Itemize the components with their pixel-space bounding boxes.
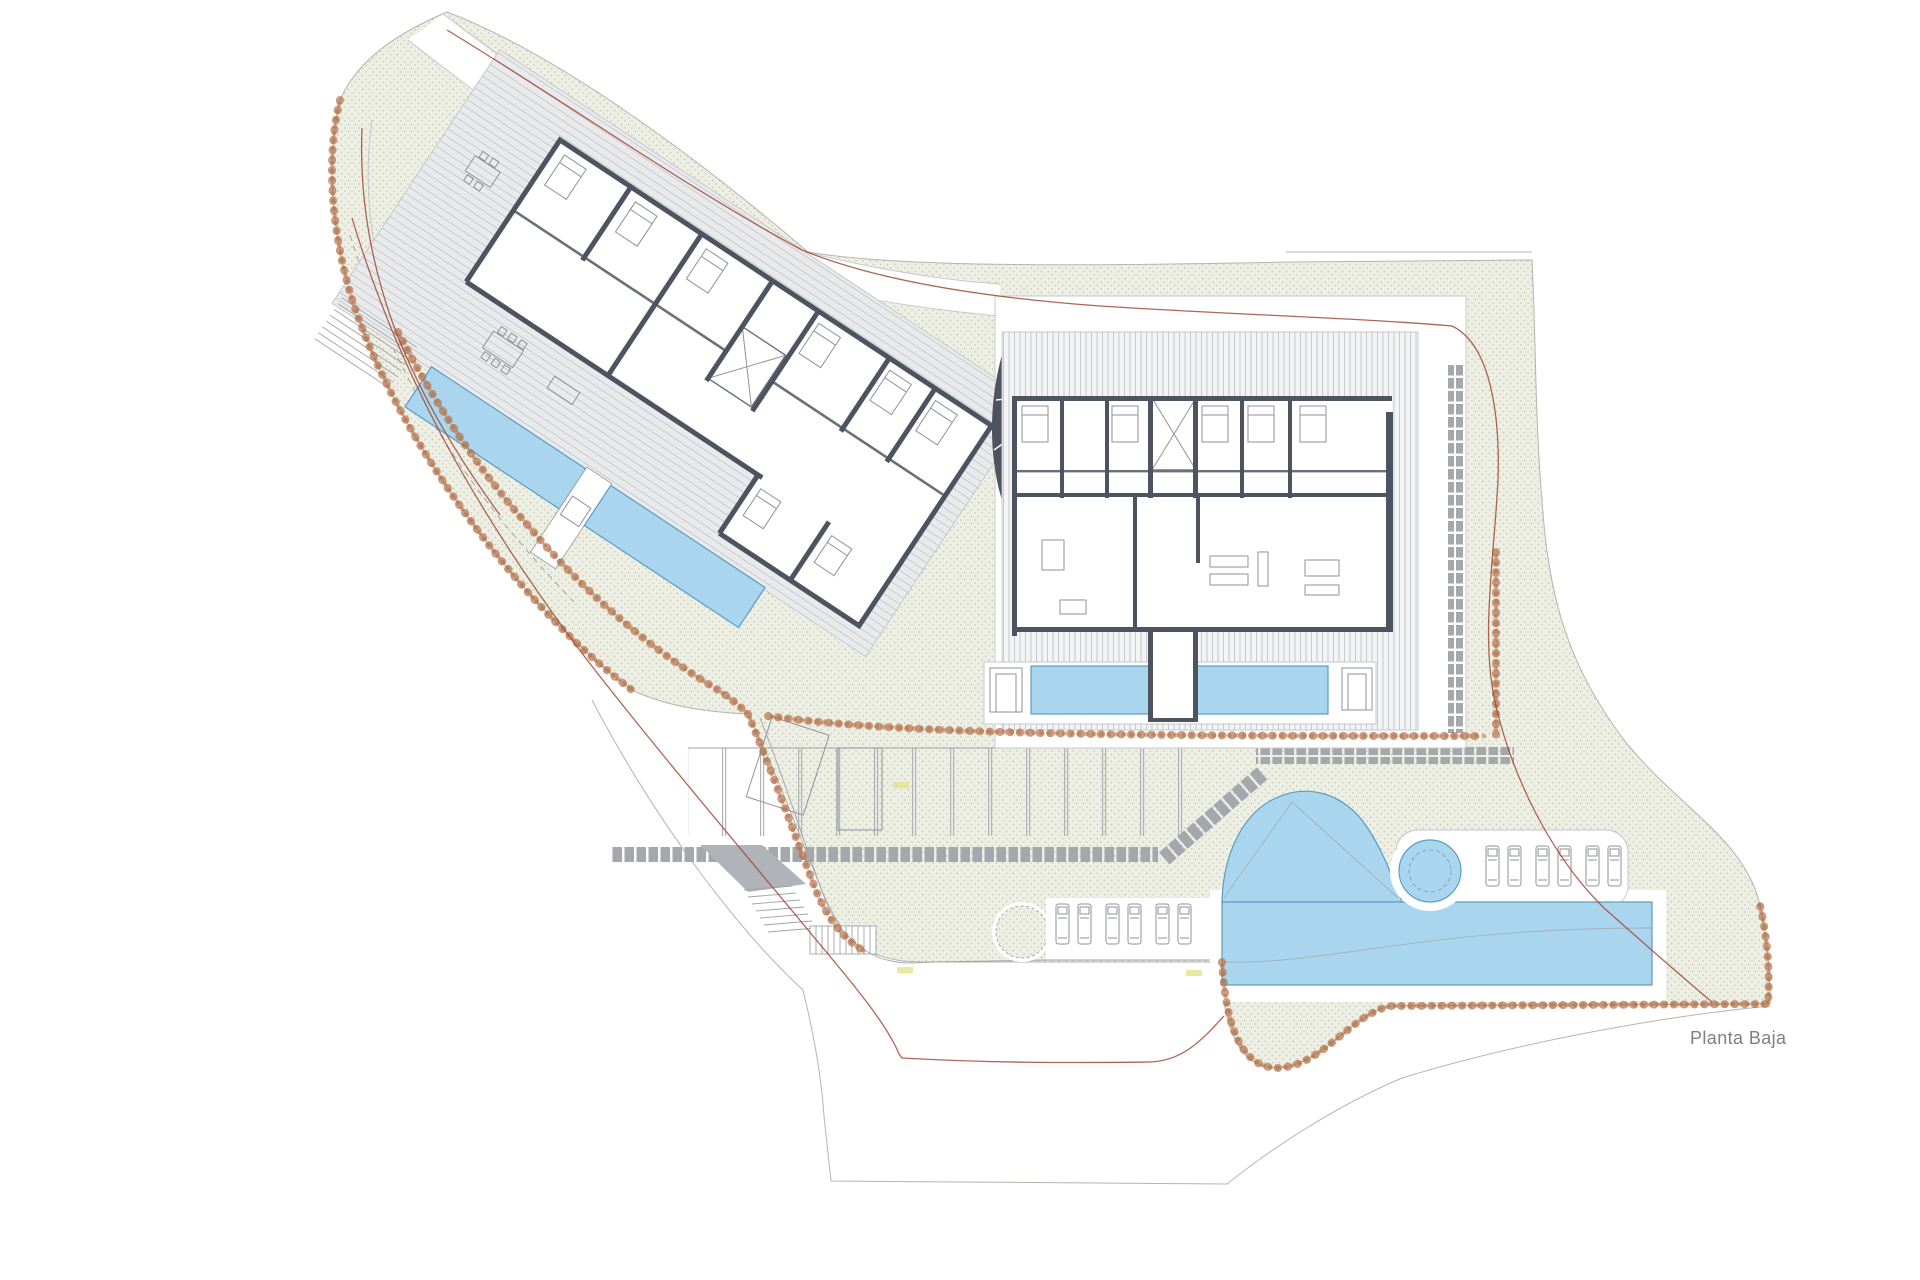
linear-pool-right-2	[1196, 666, 1328, 714]
walkway-tiles-right	[1448, 363, 1463, 733]
elevation-marker	[893, 782, 909, 788]
spa-circle	[1390, 831, 1470, 911]
elevation-marker	[1186, 970, 1202, 976]
main-pool	[1222, 902, 1652, 985]
walkway-tiles-lower	[612, 845, 1158, 862]
floor-plan-page: Planta Baja	[0, 0, 1920, 1280]
walkway-tiles-upper	[1256, 747, 1514, 764]
site-plan-drawing: Planta Baja	[0, 0, 1920, 1280]
tree-circle	[992, 902, 1052, 962]
elevation-marker	[897, 967, 913, 973]
plan-title: Planta Baja	[1690, 1028, 1787, 1048]
linear-pool-right-1	[1031, 666, 1158, 714]
